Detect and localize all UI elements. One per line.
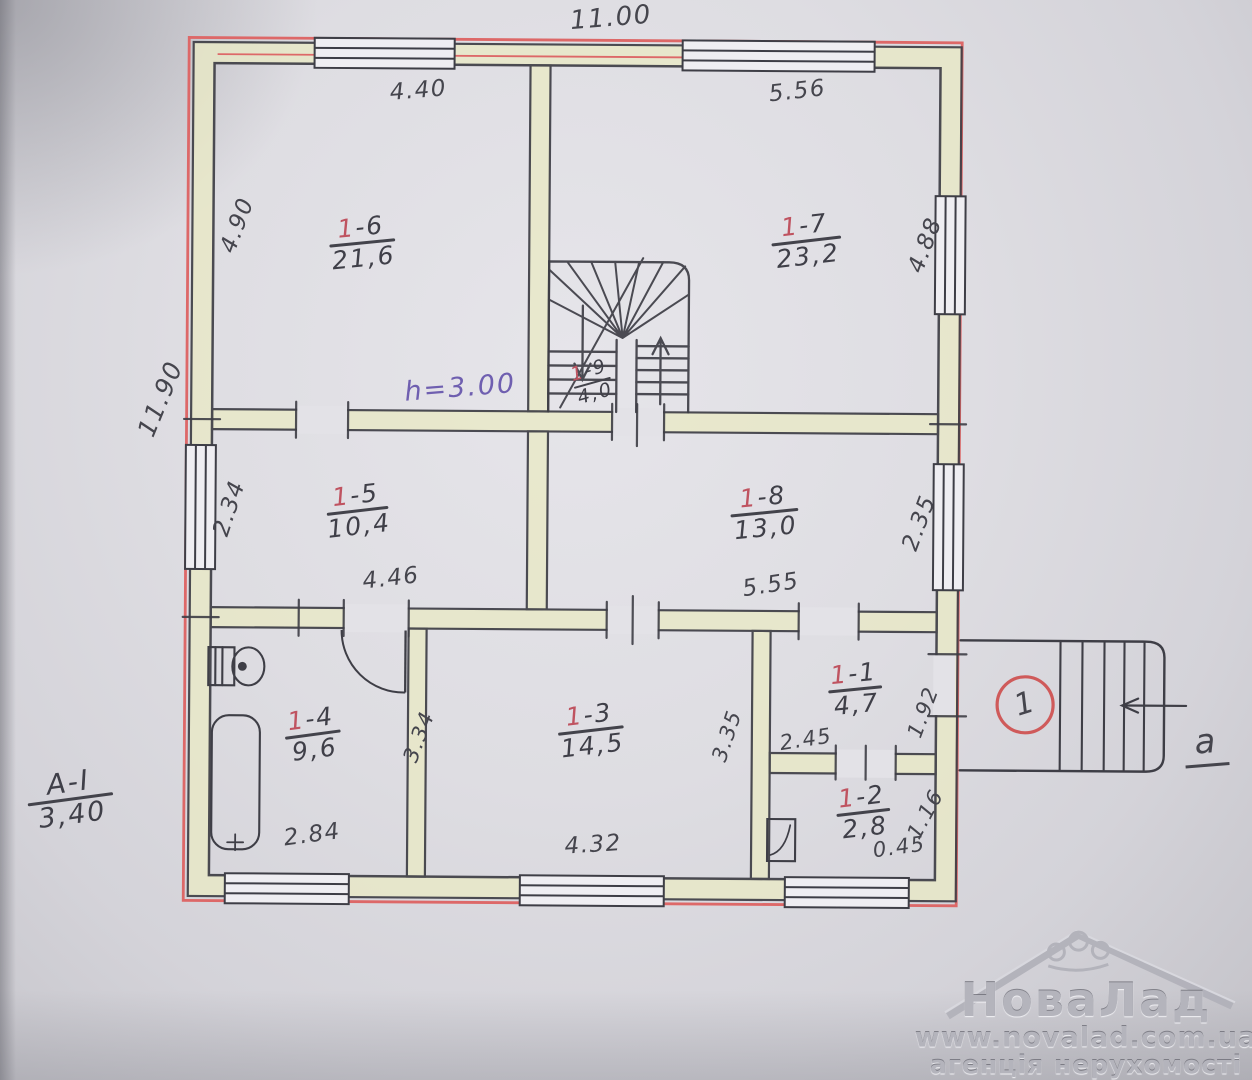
window-right-upper xyxy=(935,196,966,314)
entrance-arrow-icon xyxy=(1122,698,1186,712)
plan-sheet: 1-6 21,6 1-7 23,2 1-5 10,4 1-8 13,0 1-4 … xyxy=(0,0,1252,1080)
room-number: 1-5 xyxy=(331,480,381,511)
room-label-1-7: 1-7 23,2 xyxy=(768,209,844,274)
section-mark-label: А-І 3,40 xyxy=(24,762,118,836)
door-arc xyxy=(341,630,405,692)
floor-plan-photo: 1-6 21,6 1-7 23,2 1-5 10,4 1-8 13,0 1-4 … xyxy=(0,0,1252,1080)
room-label-1-1: 1-1 4,7 xyxy=(826,658,885,720)
room-number-rest: -6 xyxy=(354,210,386,242)
bathtub-icon xyxy=(211,715,260,850)
window-bottom-left xyxy=(225,873,349,904)
room-label-1-2: 1-2 2,8 xyxy=(833,781,893,844)
room-number-rest: -7 xyxy=(797,208,829,240)
floor-plan-drawing xyxy=(0,0,1252,1080)
room-number-rest: -5 xyxy=(348,478,380,510)
room-number-rest: -3 xyxy=(582,698,614,730)
room-area: 13,0 xyxy=(733,512,799,544)
sink-icon xyxy=(208,647,264,685)
room-label-1-4: 1-4 9,6 xyxy=(281,703,344,767)
watermark-brand: НоваЛад xyxy=(961,973,1212,1027)
dim-room6-width: 4.40 xyxy=(389,75,448,106)
dim-room3-width: 4.32 xyxy=(564,830,623,860)
window-right-lower xyxy=(933,464,964,590)
watermark-tagline: агенція нерухомості xyxy=(930,1051,1242,1080)
room-area: 9,6 xyxy=(291,734,340,766)
room-area: 21,6 xyxy=(331,243,397,275)
porch-letter-text: а xyxy=(1193,721,1218,763)
room-label-1-5: 1-5 10,4 xyxy=(323,479,393,543)
watermark-url: www.novalad.com.ua xyxy=(915,1023,1252,1054)
window-bottom-right xyxy=(785,877,909,908)
room-number: 1-3 xyxy=(564,700,614,731)
room-label-1-8: 1-8 13,0 xyxy=(728,481,801,545)
window-top-right xyxy=(683,40,875,71)
room-area: 4,7 xyxy=(833,690,881,721)
room-label-1-3: 1-3 14,5 xyxy=(555,698,627,763)
room-number: 1-2 xyxy=(837,781,887,812)
room-number-rest: -8 xyxy=(756,480,788,512)
window-top-left xyxy=(315,38,455,69)
porch xyxy=(960,640,1187,772)
door-gaps xyxy=(295,406,958,779)
room-number: 1-1 xyxy=(829,659,878,690)
section-mark: А-І xyxy=(45,765,92,800)
room-number-rest: -2 xyxy=(854,779,886,811)
room-number-rest: -1 xyxy=(847,657,879,689)
room-number: 1-8 xyxy=(738,482,787,513)
window-left xyxy=(185,445,216,569)
porch-letter: а xyxy=(1182,720,1229,768)
window-bottom-middle xyxy=(520,875,664,906)
room-number: 1-6 xyxy=(336,212,385,243)
boiler-icon xyxy=(767,819,795,861)
windows xyxy=(183,37,967,908)
staircase xyxy=(548,257,689,412)
room-label-1-6: 1-6 21,6 xyxy=(327,211,398,275)
room-number-rest: -4 xyxy=(303,701,336,734)
room-number: 1-7 xyxy=(780,210,830,241)
